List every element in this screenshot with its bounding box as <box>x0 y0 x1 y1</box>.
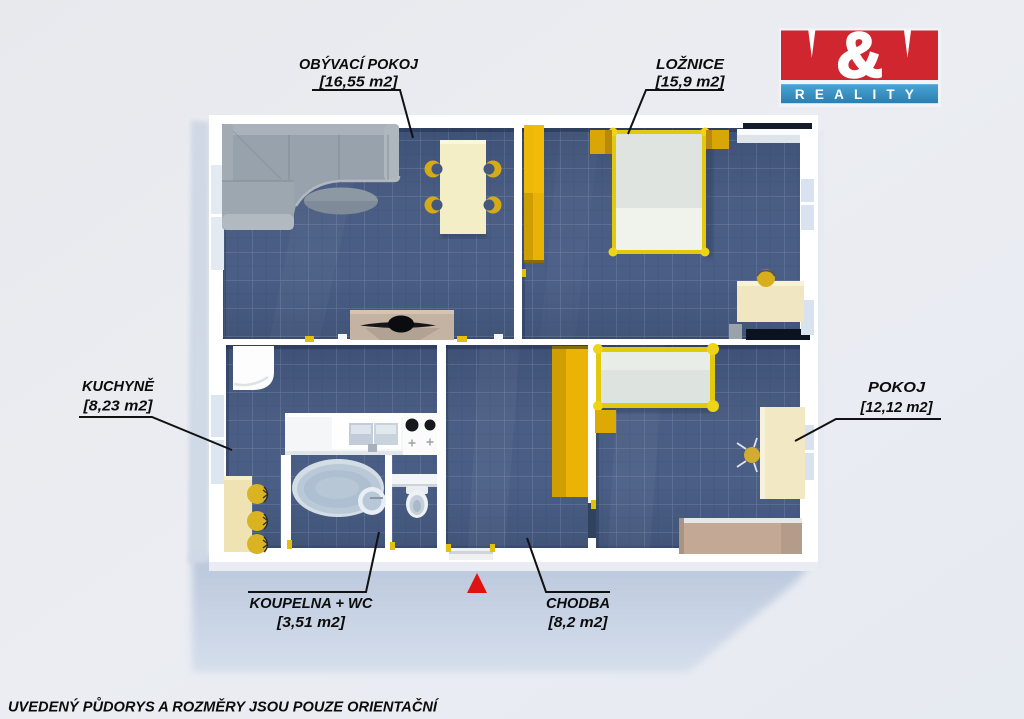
svg-text:KUCHYNĚ: KUCHYNĚ <box>82 377 155 395</box>
svg-text:[8,2 m2]: [8,2 m2] <box>547 614 608 631</box>
svg-text:POKOJ: POKOJ <box>868 379 926 396</box>
svg-text:UVEDENÝ PŮDORYS A ROZMĚRY JSOU: UVEDENÝ PŮDORYS A ROZMĚRY JSOU POUZE ORI… <box>8 697 440 716</box>
svg-text:[16,55 m2]: [16,55 m2] <box>318 74 398 91</box>
svg-text:CHODBA: CHODBA <box>546 595 610 612</box>
svg-text:[8,23 m2]: [8,23 m2] <box>82 398 153 415</box>
svg-text:OBÝVACÍ POKOJ: OBÝVACÍ POKOJ <box>299 56 419 73</box>
svg-text:LOŽNICE: LOŽNICE <box>656 55 725 73</box>
svg-text:[15,9 m2]: [15,9 m2] <box>654 74 725 91</box>
svg-text:KOUPELNA + WC: KOUPELNA + WC <box>250 595 374 612</box>
svg-text:[3,51 m2]: [3,51 m2] <box>276 614 346 631</box>
svg-text:[12,12 m2]: [12,12 m2] <box>860 399 934 416</box>
svg-text:&: & <box>836 19 882 91</box>
svg-text:REALITY: REALITY <box>795 87 924 102</box>
